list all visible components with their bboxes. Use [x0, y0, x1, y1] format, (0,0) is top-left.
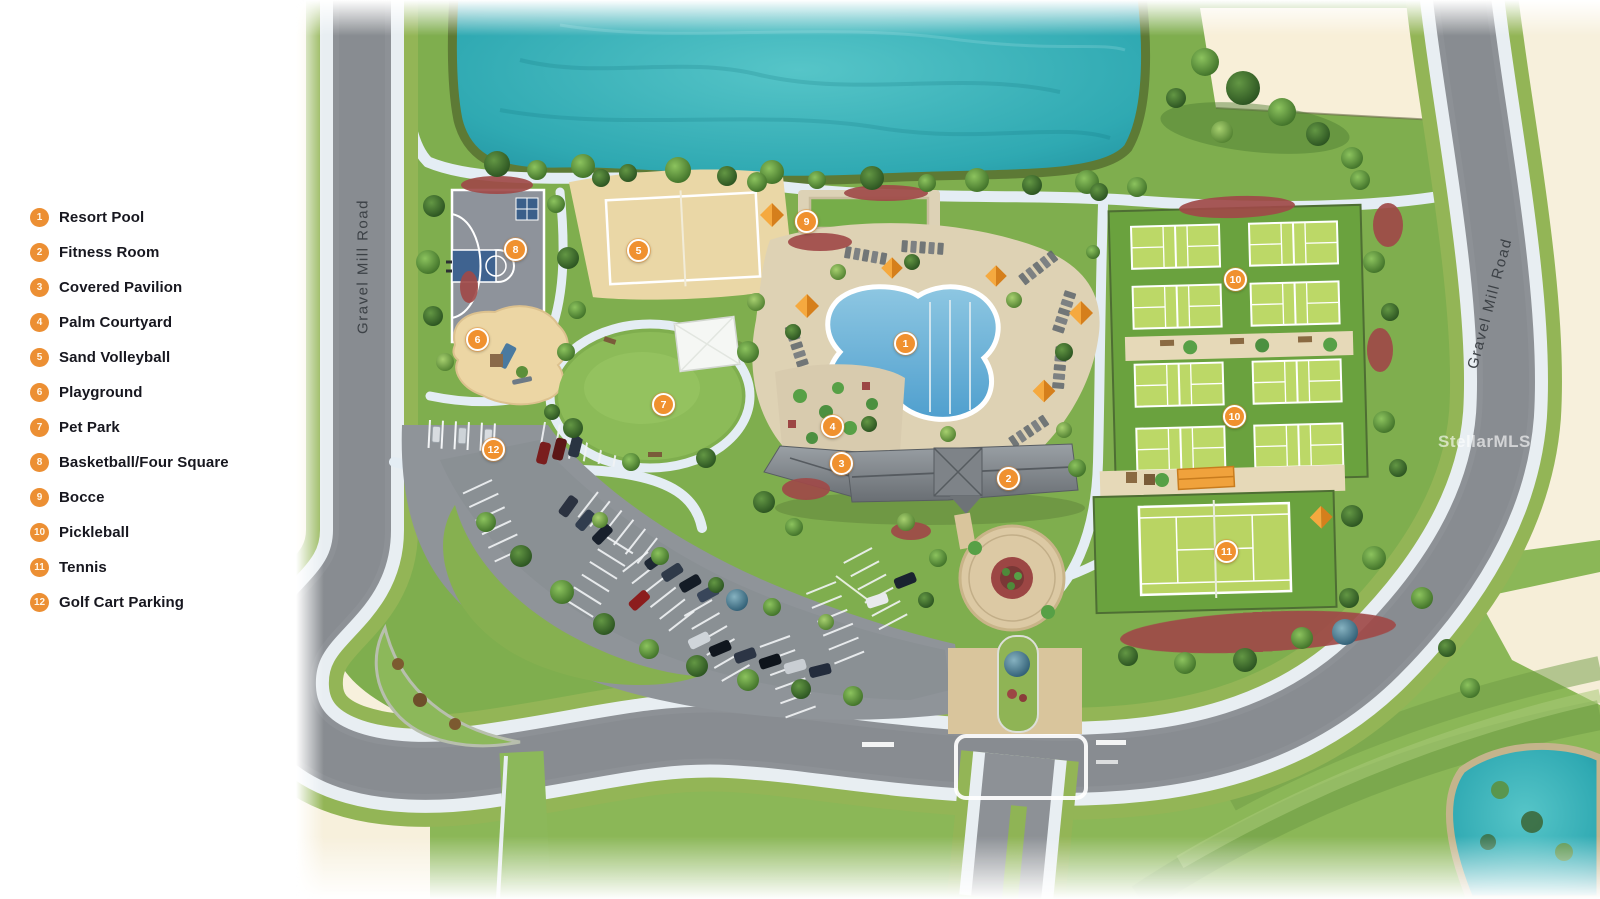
map-marker-7: 7	[652, 393, 675, 416]
legend-item-number: 6	[30, 383, 49, 402]
site-plan-illustration	[0, 0, 1600, 899]
legend-item-playground: 6Playground	[30, 375, 229, 410]
legend-item-pickleball: 10Pickleball	[30, 515, 229, 550]
legend-item-label: Pet Park	[59, 419, 120, 436]
legend-item-label: Bocce	[59, 489, 105, 506]
legend-item-label: Palm Courtyard	[59, 314, 172, 331]
legend-item-tennis: 11Tennis	[30, 550, 229, 585]
palm-courtyard	[775, 364, 905, 457]
legend-item-label: Golf Cart Parking	[59, 594, 184, 611]
map-marker-10: 10	[1223, 405, 1246, 428]
legend-item-covered-pavilion: 3Covered Pavilion	[30, 270, 229, 305]
playground	[453, 306, 567, 404]
legend-item-number: 3	[30, 278, 49, 297]
road-label-gravel-mill-road-west: Gravel Mill Road	[355, 192, 372, 342]
legend-item-label: Tennis	[59, 559, 107, 576]
map-marker-8: 8	[504, 238, 527, 261]
legend-item-number: 8	[30, 453, 49, 472]
map-marker-12: 12	[482, 438, 505, 461]
legend-item-number: 10	[30, 523, 49, 542]
legend-item-number: 1	[30, 208, 49, 227]
legend-item-number: 5	[30, 348, 49, 367]
site-plan-canvas: 1Resort Pool2Fitness Room3Covered Pavili…	[0, 0, 1600, 899]
map-marker-5: 5	[627, 239, 650, 262]
legend-item-bocce: 9Bocce	[30, 480, 229, 515]
legend-item-label: Covered Pavilion	[59, 279, 182, 296]
legend-item-basketball-four-square: 8Basketball/Four Square	[30, 445, 229, 480]
stellar-mls-watermark: StellarMLS	[1438, 432, 1531, 452]
pickleball-courts	[1109, 205, 1368, 484]
map-marker-3: 3	[830, 452, 853, 475]
legend-item-number: 12	[30, 593, 49, 612]
map-marker-2: 2	[997, 467, 1020, 490]
legend-item-number: 11	[30, 558, 49, 577]
entry-plaza	[960, 526, 1064, 630]
legend-item-number: 9	[30, 488, 49, 507]
map-marker-6: 6	[466, 328, 489, 351]
map-marker-9: 9	[795, 210, 818, 233]
legend-item-sand-volleyball: 5Sand Volleyball	[30, 340, 229, 375]
legend-item-label: Playground	[59, 384, 143, 401]
legend-item-label: Sand Volleyball	[59, 349, 170, 366]
map-marker-4: 4	[821, 415, 844, 438]
legend-item-label: Fitness Room	[59, 244, 159, 261]
map-marker-10: 10	[1224, 268, 1247, 291]
legend-item-label: Resort Pool	[59, 209, 144, 226]
map-marker-1: 1	[894, 332, 917, 355]
legend-item-palm-courtyard: 4Palm Courtyard	[30, 305, 229, 340]
legend-item-golf-cart-parking: 12Golf Cart Parking	[30, 585, 229, 620]
legend-item-pet-park: 7Pet Park	[30, 410, 229, 445]
legend-item-label: Basketball/Four Square	[59, 454, 229, 471]
map-marker-11: 11	[1215, 540, 1238, 563]
legend-item-number: 4	[30, 313, 49, 332]
legend-item-number: 7	[30, 418, 49, 437]
legend-item-resort-pool: 1Resort Pool	[30, 200, 229, 235]
legend-item-number: 2	[30, 243, 49, 262]
legend-item-label: Pickleball	[59, 524, 129, 541]
amenities-legend: 1Resort Pool2Fitness Room3Covered Pavili…	[30, 200, 229, 620]
legend-item-fitness-room: 2Fitness Room	[30, 235, 229, 270]
